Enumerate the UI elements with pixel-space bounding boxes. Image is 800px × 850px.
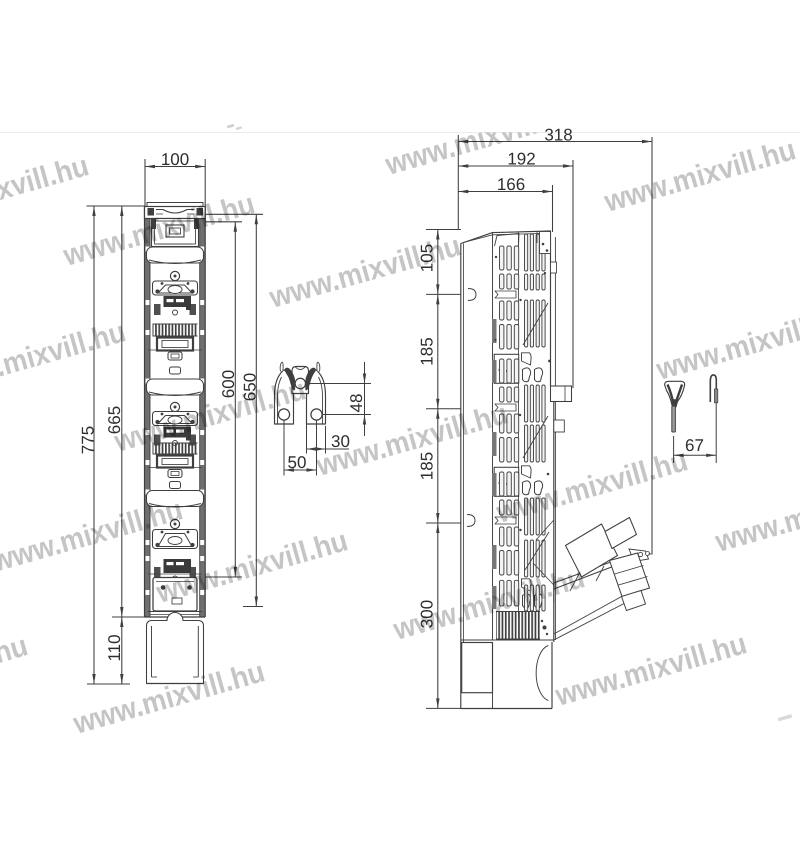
svg-text:185: 185 <box>418 452 437 480</box>
svg-text:166: 166 <box>497 175 525 194</box>
svg-text:185: 185 <box>418 337 437 365</box>
svg-text:100: 100 <box>161 150 189 169</box>
svg-text:50: 50 <box>288 453 307 472</box>
svg-text:67: 67 <box>685 436 704 455</box>
svg-text:48: 48 <box>347 394 366 413</box>
svg-text:192: 192 <box>507 150 535 169</box>
svg-text:775: 775 <box>79 426 98 454</box>
svg-text:110: 110 <box>105 634 124 661</box>
